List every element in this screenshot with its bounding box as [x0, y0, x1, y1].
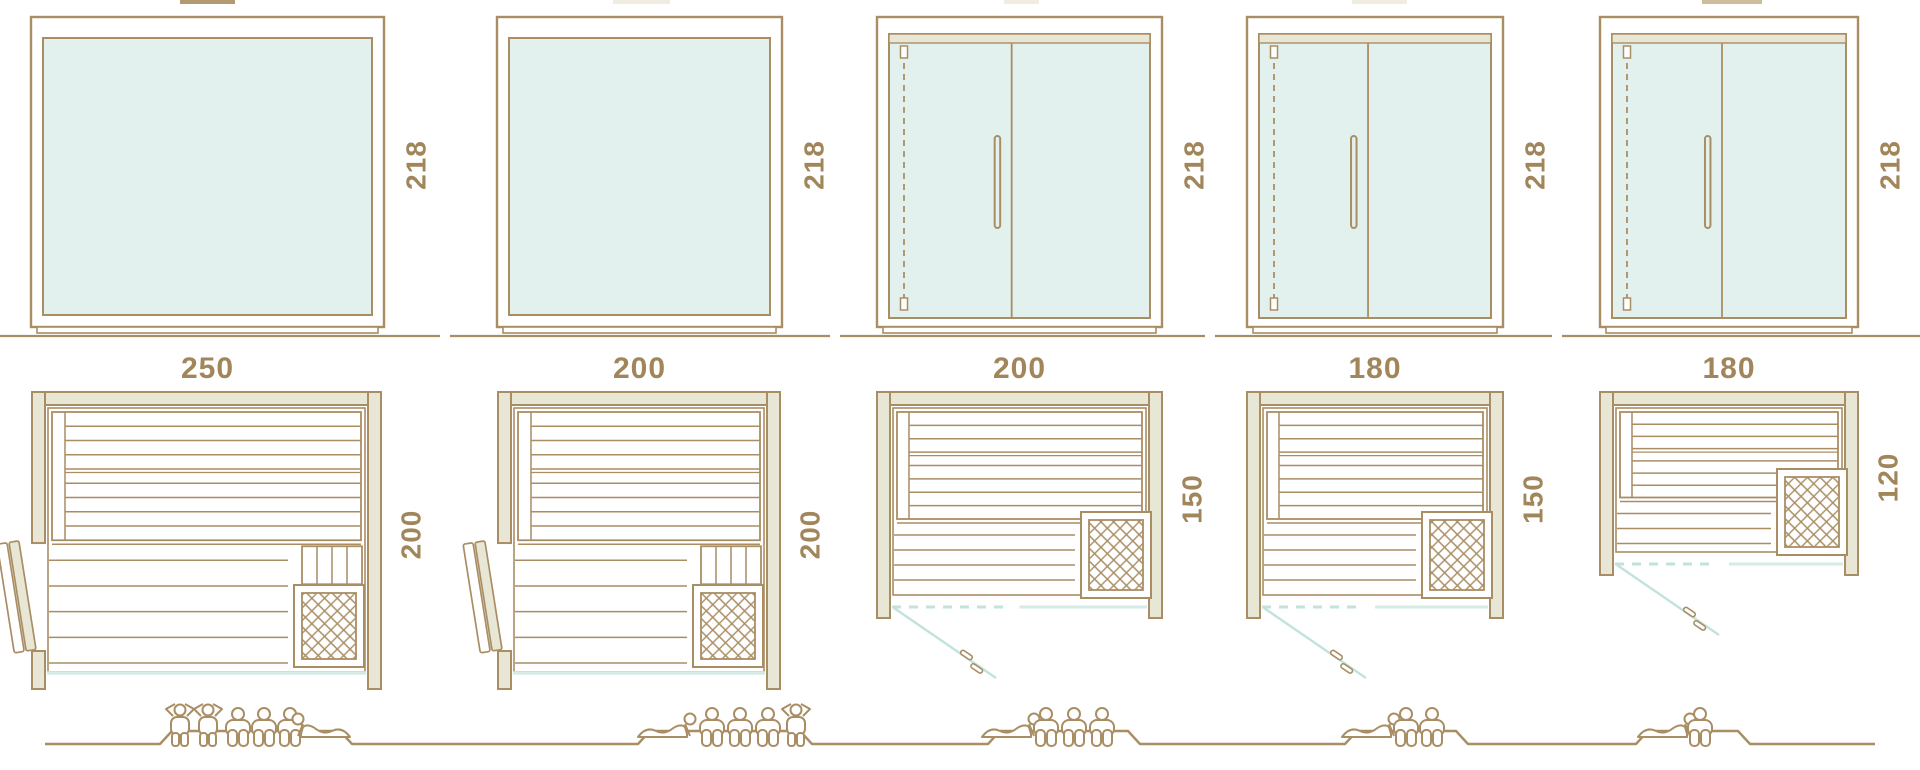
unit-2-plan [463, 392, 780, 689]
person-seated-icon [226, 708, 250, 746]
capacity-group-2 [638, 704, 810, 746]
sauna-dimensions-diagram: 250218200 200218200 [0, 0, 1920, 770]
hinge-icon [1271, 298, 1278, 310]
person-seated-icon [1062, 708, 1086, 746]
unit-5-plan [1600, 392, 1858, 635]
person-seated-icon [728, 708, 752, 746]
depth-dimension-label: 200 [396, 510, 427, 560]
wall-left [32, 392, 45, 543]
glass-door-panel [1259, 34, 1491, 318]
person-lying-icon [1638, 714, 1696, 738]
wall-back [498, 392, 780, 405]
person-seated-icon [252, 708, 276, 746]
upper-bench [52, 412, 361, 540]
glass-door-panel [889, 34, 1150, 318]
door-handle-icon [995, 136, 1001, 228]
wall-left [877, 392, 890, 618]
lintel-band [1259, 34, 1491, 43]
lintel-band [889, 34, 1150, 43]
height-dimension-label: 218 [1875, 140, 1906, 190]
wall-back [877, 392, 1162, 405]
wall-left [498, 392, 511, 543]
capacity-group-5 [1638, 708, 1712, 746]
unit-1-elevation [31, 17, 384, 333]
unit-5-elevation [1600, 17, 1858, 333]
open-door-leaf [463, 541, 502, 653]
height-dimension-label: 218 [1520, 140, 1551, 190]
person-seated-icon [1090, 708, 1114, 746]
wall-left [1247, 392, 1260, 618]
slat-block [701, 546, 761, 584]
unit-3-plan [877, 392, 1162, 678]
hinge-icon [1624, 298, 1631, 310]
height-dimension-label: 218 [401, 140, 432, 190]
width-dimension-label: 180 [1348, 352, 1401, 385]
heater [1422, 512, 1492, 598]
base-sill [1606, 327, 1852, 333]
width-dimension-label: 200 [613, 352, 666, 385]
person-standing-icon [782, 704, 810, 746]
hinge-icon [901, 298, 908, 310]
cropped-artifact [1004, 0, 1039, 4]
person-seated-icon [1420, 708, 1444, 746]
hinge-icon [1624, 46, 1631, 58]
depth-dimension-label: 200 [795, 510, 826, 560]
cropped-artifact [613, 0, 670, 4]
wall-left [1600, 392, 1613, 575]
upper-bench [518, 412, 760, 540]
glass-panel [43, 38, 372, 315]
glass-panel [509, 38, 770, 315]
depth-dimension-label: 150 [1177, 474, 1208, 524]
capacity-group-4 [1342, 708, 1444, 746]
wall-right [368, 392, 381, 689]
unit-1-plan [0, 392, 381, 689]
door-post [498, 651, 511, 689]
door-handle-icon [1351, 136, 1357, 228]
depth-dimension-label: 120 [1873, 453, 1904, 503]
wall-back [1247, 392, 1503, 405]
base-sill [1253, 327, 1497, 333]
base-sill [37, 327, 378, 333]
base-sill [883, 327, 1156, 333]
width-dimension-label: 180 [1702, 352, 1755, 385]
unit-3-elevation [877, 17, 1162, 333]
lintel-band [1612, 34, 1846, 43]
slat-block [302, 546, 362, 584]
width-dimension-label: 250 [181, 352, 234, 385]
person-lying-icon [638, 714, 696, 738]
glass-door-panel [1612, 34, 1846, 318]
width-dimension-label: 200 [993, 352, 1046, 385]
unit-4-elevation [1247, 17, 1503, 333]
diagram-canvas: 250218200 200218200 [0, 0, 1920, 770]
person-seated-icon [700, 708, 724, 746]
depth-dimension-label: 150 [1518, 474, 1549, 524]
heater [1777, 469, 1847, 555]
wall-back [32, 392, 381, 405]
person-standing-icon [194, 704, 222, 746]
height-dimension-label: 218 [1179, 140, 1210, 190]
open-door-leaf [0, 541, 36, 653]
person-seated-icon [756, 708, 780, 746]
height-dimension-label: 218 [799, 140, 830, 190]
capacity-group-1 [166, 704, 350, 746]
unit-2-elevation [497, 17, 782, 333]
cropped-artifact [180, 0, 235, 4]
unit-4-plan [1247, 392, 1503, 678]
wall-right [767, 392, 780, 689]
cropped-artifact [1352, 0, 1407, 4]
base-sill [503, 327, 776, 333]
heater [1081, 512, 1151, 598]
heater [693, 585, 763, 667]
hinge-icon [901, 46, 908, 58]
capacity-group-3 [982, 708, 1114, 746]
heater [294, 585, 364, 667]
door-handle-icon [1705, 136, 1711, 228]
hinge-icon [1271, 46, 1278, 58]
cropped-artifact [1702, 0, 1762, 4]
person-lying-icon [982, 714, 1040, 738]
person-lying-icon [1342, 714, 1400, 738]
wall-back [1600, 392, 1858, 405]
person-standing-icon [166, 704, 194, 746]
door-post [32, 651, 45, 689]
